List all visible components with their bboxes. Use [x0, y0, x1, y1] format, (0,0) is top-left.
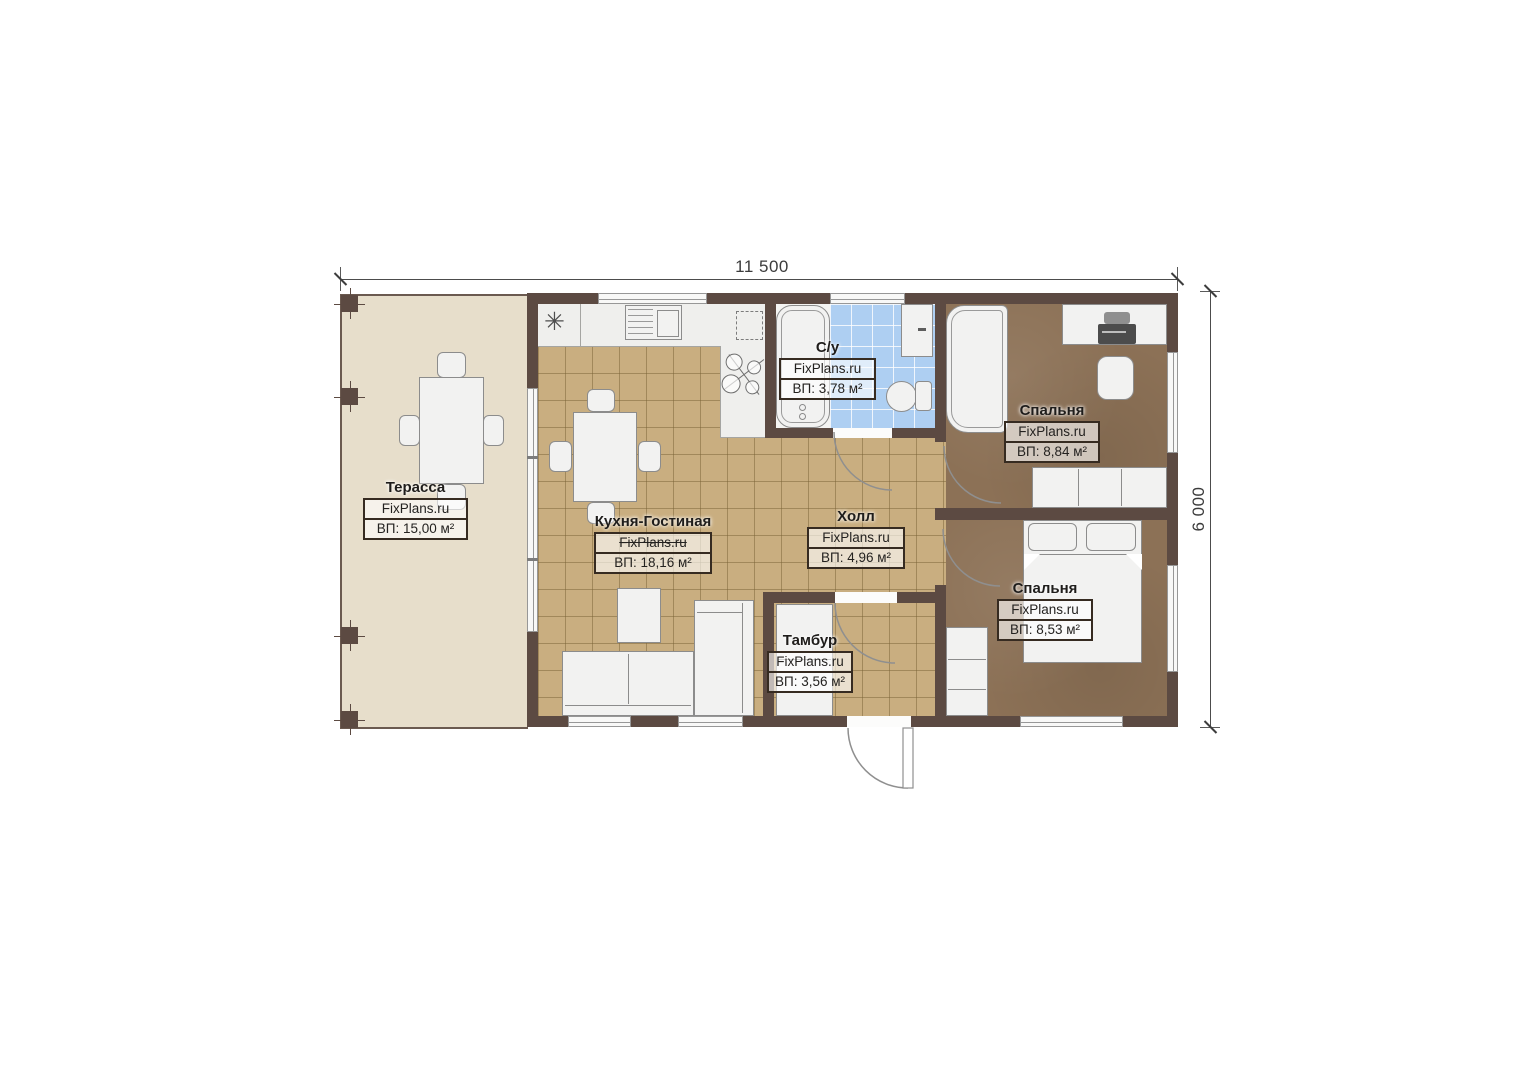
glazing-divider: [527, 456, 538, 459]
bedrooms-wall: [935, 585, 946, 716]
entrance-opening: [847, 716, 911, 727]
blanket-fold: [1024, 554, 1040, 570]
terrace-chair: [483, 415, 504, 446]
kitchen-sink-unit: [625, 305, 682, 340]
entrance-door-arc: [848, 728, 908, 788]
room-name: Спальня: [997, 580, 1093, 597]
terrace-post: [341, 627, 358, 644]
watermark-box: FixPlans.ru ВП: 4,96 м²: [807, 527, 905, 569]
desk-chair: [1097, 356, 1134, 400]
dining-chair: [549, 441, 572, 472]
dimension-width: 11 500: [700, 257, 824, 277]
window-kitchen: [598, 293, 707, 304]
window-bedroom-top-right: [1167, 352, 1178, 453]
dimension-height: 6 000: [1189, 479, 1209, 539]
sink-basin: [657, 310, 679, 337]
bathroom-door-opening: [833, 428, 892, 438]
pillow: [1086, 523, 1136, 551]
window-bathroom: [830, 293, 905, 304]
room-name: Тамбур: [767, 632, 853, 649]
vestibule-door-opening: [835, 592, 897, 603]
watermark-box: FixPlans.ru ВП: 8,53 м²: [997, 599, 1093, 641]
sofa-chaise: [694, 600, 754, 716]
sofa: [562, 651, 694, 716]
bathroom-label: С/у FixPlans.ru ВП: 3,78 м²: [779, 339, 876, 400]
room-area: ВП: 8,84 м²: [1006, 441, 1098, 461]
window-living-2: [678, 716, 743, 727]
watermark-text: FixPlans.ru: [999, 601, 1091, 619]
bedroom-top-label: Спальня FixPlans.ru ВП: 8,84 м²: [1004, 402, 1100, 463]
room-name: С/у: [779, 339, 876, 356]
blanket-edge: [1024, 554, 1141, 555]
wardrobe: [946, 627, 988, 716]
terrace-chair: [437, 352, 466, 378]
printer-lid: [1104, 312, 1130, 324]
dimension-line-right: [1210, 291, 1211, 727]
fridge-outline: [736, 311, 763, 340]
watermark-text: FixPlans.ru: [769, 653, 851, 671]
glazing-divider: [527, 558, 538, 561]
bathroom-wall-left: [765, 304, 776, 438]
kitchen-vent-icon: ✳: [544, 310, 565, 335]
vestibule-label: Тамбур FixPlans.ru ВП: 3,56 м²: [767, 632, 853, 693]
room-area: ВП: 3,56 м²: [769, 671, 851, 691]
coffee-table: [617, 588, 661, 643]
dining-table: [573, 412, 637, 502]
dimension-line-top: [340, 279, 1177, 280]
room-name: Спальня: [1004, 402, 1100, 419]
bathtub-faucet: [799, 404, 806, 411]
room-area: ВП: 8,53 м²: [999, 619, 1091, 639]
toilet-bowl: [886, 381, 917, 412]
room-area: ВП: 15,00 м²: [365, 518, 466, 538]
terrace-chair: [399, 415, 420, 446]
terrace-post: [341, 711, 358, 728]
watermark-text: FixPlans.ru: [781, 360, 874, 378]
terrace-post: [341, 388, 358, 405]
room-area: ВП: 4,96 м²: [809, 547, 903, 567]
printer: [1098, 324, 1136, 344]
sink-drainer: [628, 309, 653, 337]
blanket-fold: [1126, 554, 1142, 570]
terrace-post: [341, 295, 358, 312]
watermark-text: FixPlans.ru: [365, 500, 466, 518]
wardrobe-divider: [948, 689, 986, 690]
hall-label: Холл FixPlans.ru ВП: 4,96 м²: [807, 508, 905, 569]
window-terrace-glazing: [527, 388, 538, 632]
watermark-text: FixPlans.ru: [809, 529, 903, 547]
window-bedroom-bottom: [1020, 716, 1123, 727]
entrance-door-leaf: [903, 728, 913, 788]
room-area: ВП: 18,16 м²: [596, 552, 710, 572]
dining-chair: [587, 389, 615, 412]
room-area: ВП: 3,78 м²: [781, 378, 874, 398]
kitchen-living-label: Кухня-Гостиная FixPlans.ru ВП: 18,16 м²: [594, 513, 712, 574]
watermark-text: FixPlans.ru: [596, 534, 710, 552]
watermark-box: FixPlans.ru ВП: 18,16 м²: [594, 532, 712, 574]
window-living-1: [568, 716, 631, 727]
wardrobe-divider: [1078, 469, 1079, 506]
watermark-text: FixPlans.ru: [1006, 423, 1098, 441]
vestibule-wall-top: [897, 592, 935, 603]
window-bedroom-bottom-right: [1167, 565, 1178, 672]
watermark-box: FixPlans.ru ВП: 3,56 м²: [767, 651, 853, 693]
bedrooms-divider-wall: [935, 508, 1167, 520]
watermark-box: FixPlans.ru ВП: 15,00 м²: [363, 498, 468, 540]
counter-divider: [580, 304, 581, 346]
toilet-tank: [915, 381, 932, 411]
bathtub-drain: [799, 413, 806, 420]
bedroom-bottom-label: Спальня FixPlans.ru ВП: 8,53 м²: [997, 580, 1093, 641]
bedroom-sofa: [946, 305, 1008, 433]
vestibule-wall-top: [763, 592, 835, 603]
printer-stripe: [1102, 331, 1126, 333]
room-name: Кухня-Гостиная: [594, 513, 712, 530]
bathroom-wall-bottom: [765, 428, 833, 438]
terrace-table: [419, 377, 484, 484]
room-name: Холл: [807, 508, 905, 525]
bedrooms-wall: [935, 304, 946, 442]
wardrobe: [1032, 467, 1167, 508]
wardrobe-divider: [948, 659, 986, 660]
cabinet-handle: [918, 328, 926, 331]
watermark-box: FixPlans.ru ВП: 8,84 м²: [1004, 421, 1100, 463]
bathroom-sink-cabinet: [901, 304, 933, 357]
watermark-box: FixPlans.ru ВП: 3,78 м²: [779, 358, 876, 400]
terrace-label: Терасса FixPlans.ru ВП: 15,00 м²: [363, 479, 468, 540]
cooktop: [718, 349, 769, 400]
pillow: [1028, 523, 1077, 551]
dining-chair: [638, 441, 661, 472]
floor-plan: ✳: [0, 0, 1528, 1080]
wardrobe-divider: [1121, 469, 1122, 506]
room-name: Терасса: [363, 479, 468, 496]
